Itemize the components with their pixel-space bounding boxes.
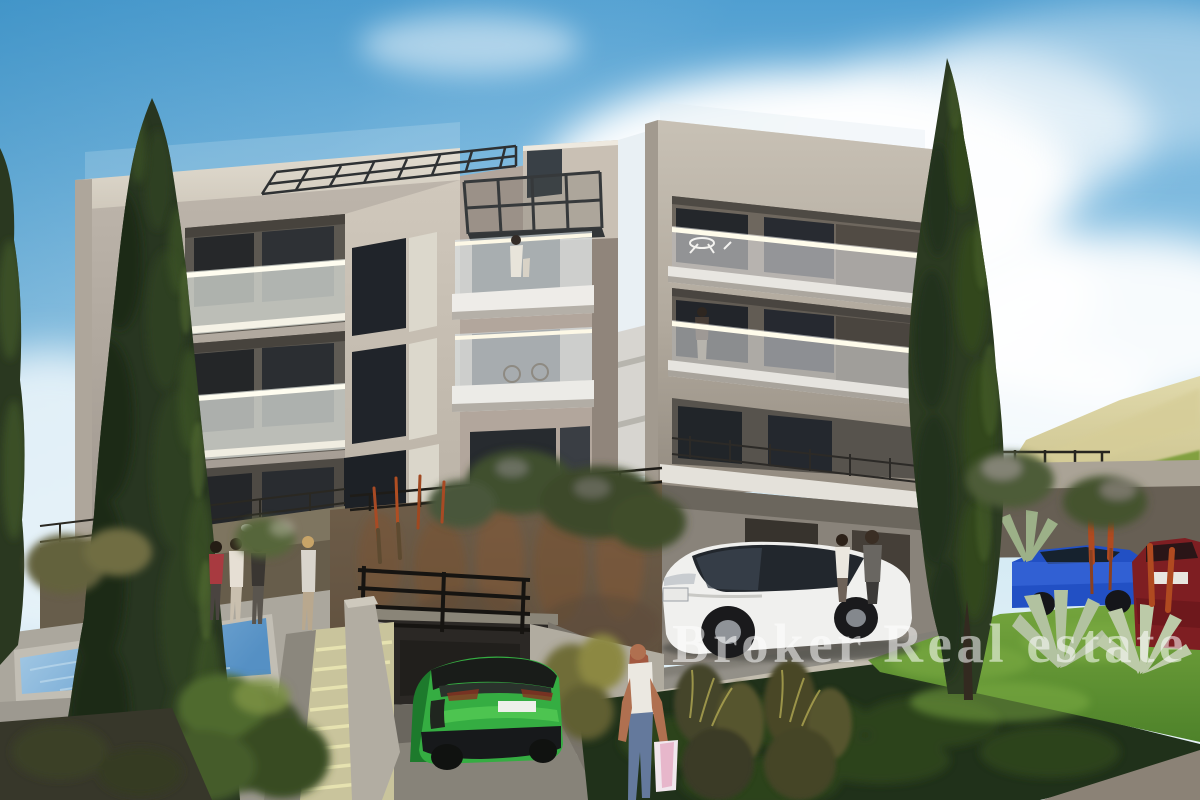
svg-text:Broker Real estate: Broker Real estate [672,613,1188,674]
